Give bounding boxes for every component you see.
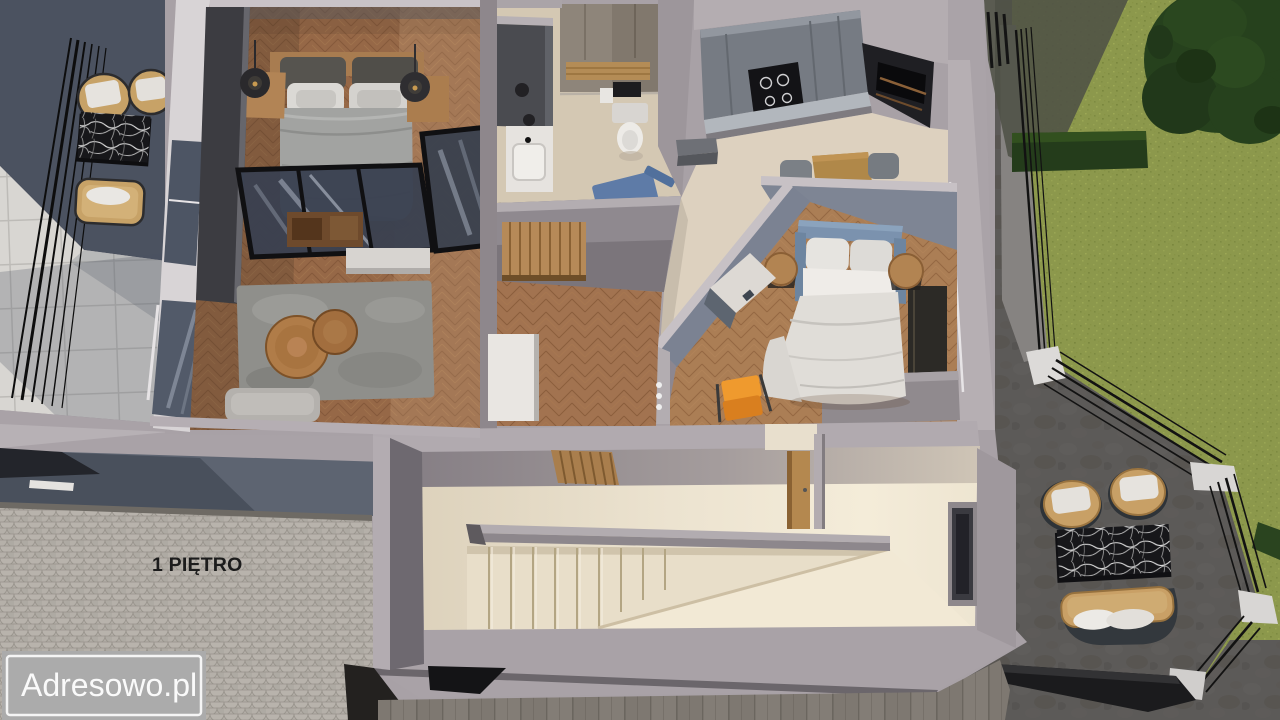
svg-text:Adresowo.pl: Adresowo.pl [21, 667, 197, 703]
svg-text:1 PIĘTRO: 1 PIĘTRO [152, 554, 242, 576]
